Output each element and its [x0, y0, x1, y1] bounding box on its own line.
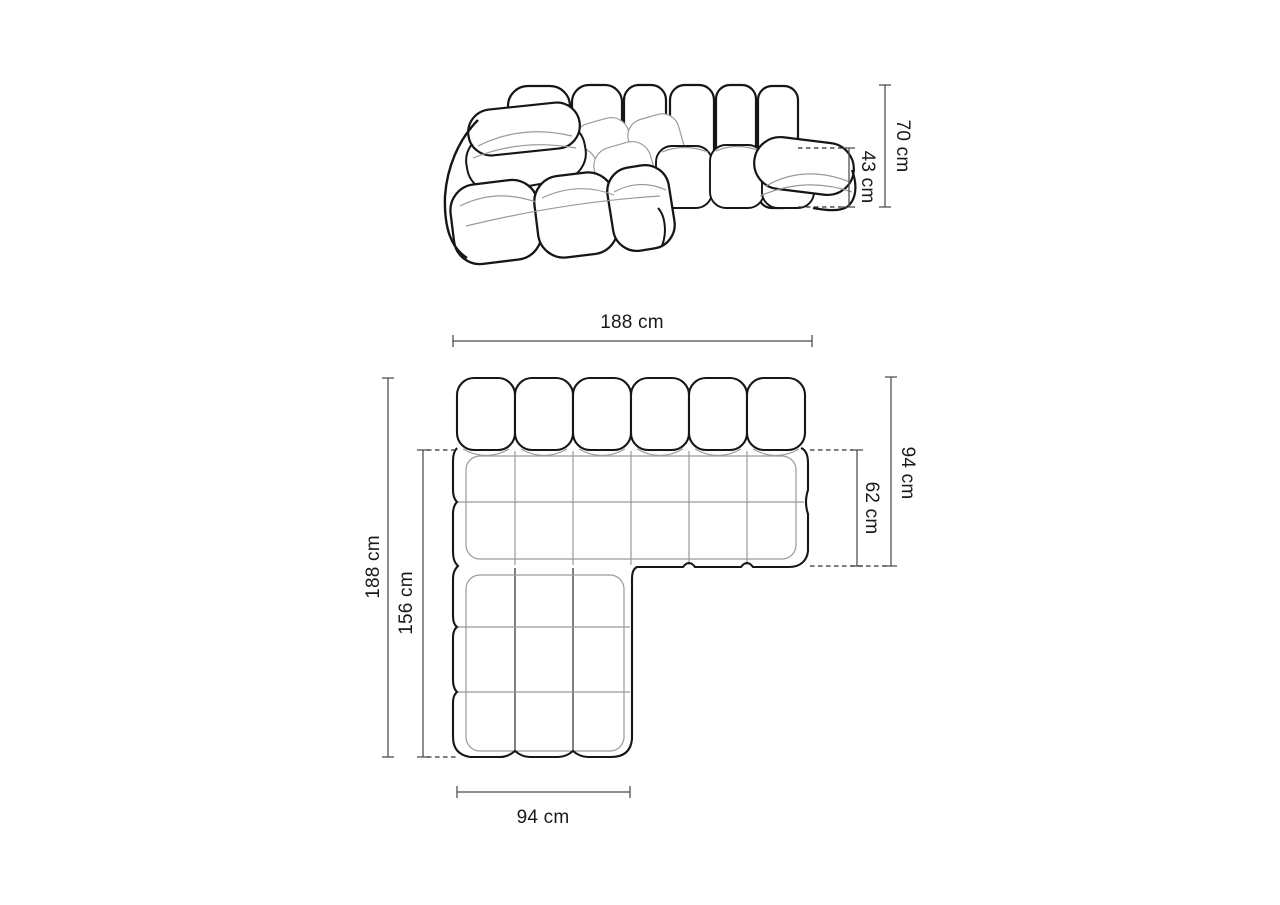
top-view-back-cushions [457, 378, 805, 450]
dim-width-188 [453, 335, 812, 347]
sofa-perspective-drawing [445, 85, 857, 267]
dim-label-chaise-width: 94 cm [517, 807, 570, 828]
dim-depth-94 [885, 377, 897, 566]
sofa-top-view-drawing [453, 378, 808, 757]
dim-label-chaise-length: 156 cm [396, 571, 417, 635]
dim-label-width: 188 cm [600, 312, 664, 333]
dim-label-depth: 94 cm [897, 447, 918, 500]
dim-height-70 [879, 85, 891, 207]
dim-chaise-width-94 [457, 786, 630, 798]
dim-label-height: 70 cm [892, 120, 913, 173]
dim-label-seat-height: 43 cm [857, 151, 878, 204]
dim-chaise-length-156 [417, 450, 429, 757]
dim-label-length: 188 cm [363, 535, 384, 599]
sofa-dimension-diagram: 70 cm 43 cm [0, 0, 1280, 905]
dim-label-seat-depth: 62 cm [861, 482, 882, 535]
dimension-diagram-page: 70 cm 43 cm [0, 0, 1280, 905]
